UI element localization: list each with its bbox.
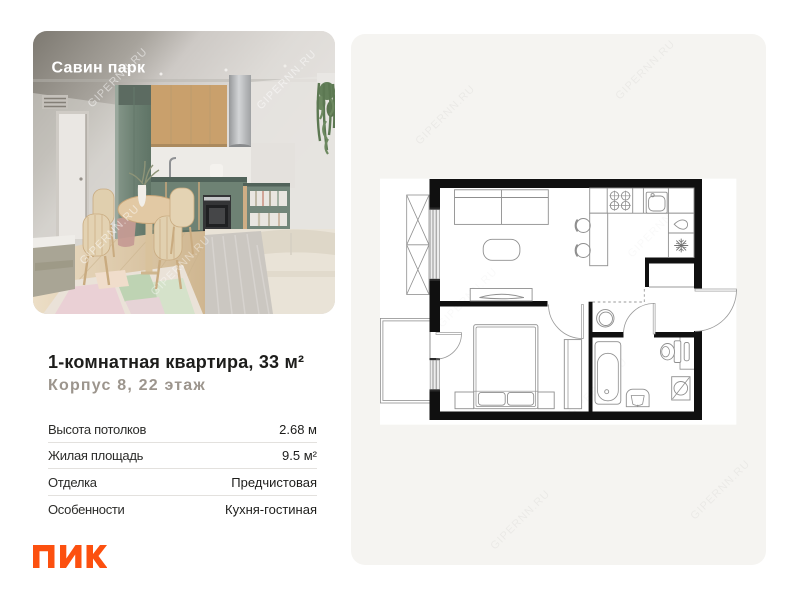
svg-text:Савин парк: Савин парк [52, 60, 146, 77]
